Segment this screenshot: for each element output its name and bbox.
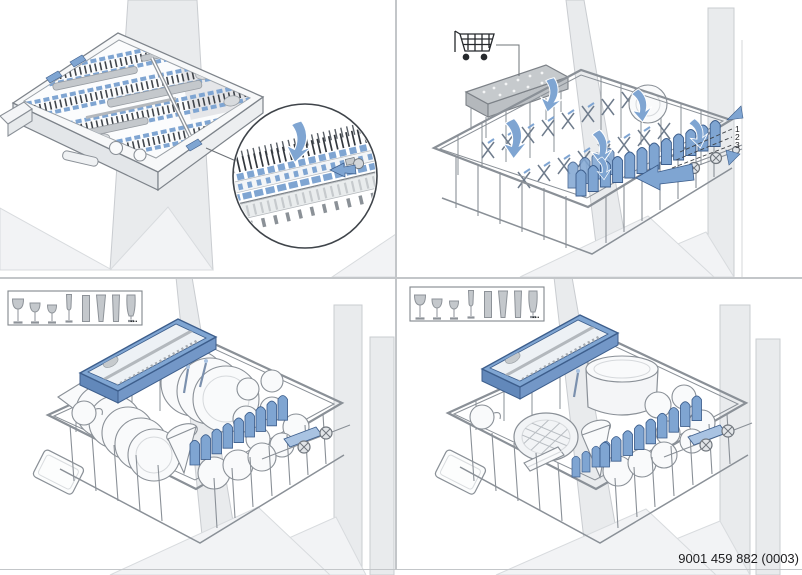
upper-rack-illustration: 1 2 3 <box>396 0 802 277</box>
legend-ellipsis: ... <box>532 310 540 320</box>
panel-lower-rack-pots: ... <box>396 277 802 575</box>
panel-lower-rack-plates: ... <box>0 277 396 575</box>
dispenser-box <box>32 449 85 496</box>
cutlery-drawer-illustration <box>0 0 396 277</box>
level-label-3: 3 <box>735 140 740 150</box>
accessory-leader-line <box>496 45 519 76</box>
glassware-legend: ... <box>8 291 142 325</box>
document-part-number: 9001 459 882 (0003) <box>678 551 799 566</box>
lower-rack-plates-illustration: ... <box>0 277 396 575</box>
lower-rack-pots-illustration: ... <box>396 277 802 575</box>
panel-cutlery-drawer <box>0 0 396 277</box>
dispenser-box <box>434 449 487 496</box>
manual-page: 1 2 3 <box>0 0 802 575</box>
panel-divider-vertical <box>395 0 397 570</box>
page-bottom-rule <box>0 569 802 570</box>
cabinet-background <box>520 0 742 277</box>
panel-divider-horizontal <box>0 277 802 279</box>
glassware-legend: ... <box>410 287 544 321</box>
legend-ellipsis: ... <box>130 314 138 324</box>
shopping-cart-icon <box>455 31 494 60</box>
panel-upper-rack-folding-tines: 1 2 3 <box>396 0 802 277</box>
